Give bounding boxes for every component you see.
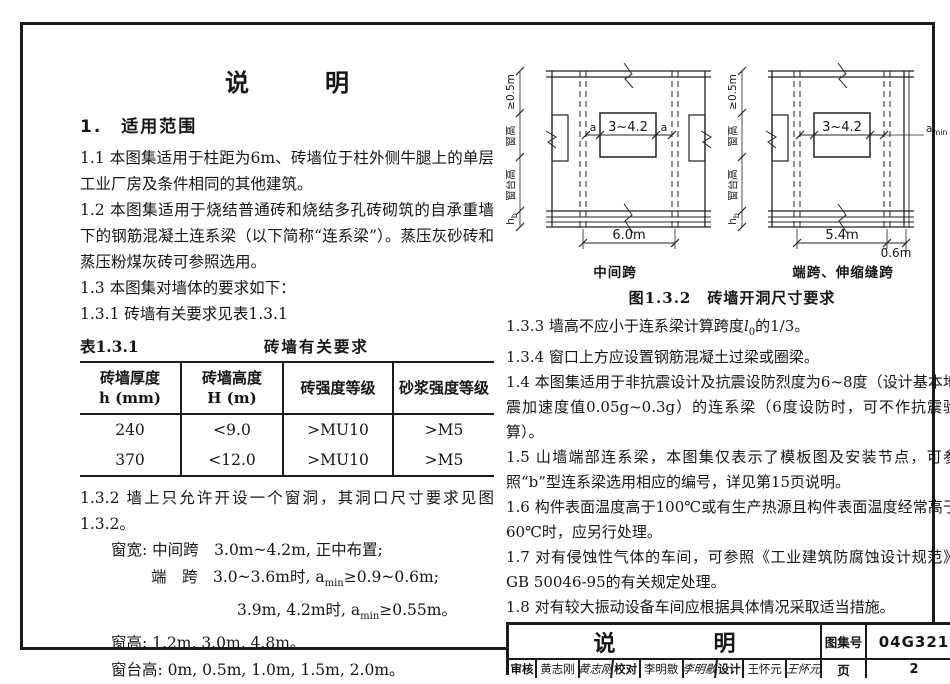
col-header-thickness: 砖墙厚度h (mm) [80,362,181,414]
spec-end-span-2: 3.9m, 4.2m时, amin≥0.55m。 [80,597,494,630]
dim-top-label: ≥0.5m [506,74,517,110]
proofreader-signature: 李明敭 [683,660,717,678]
page-label: 页 [820,658,865,678]
break-symbol [624,63,633,88]
cell: >M5 [393,445,494,476]
page-number: 2 [865,658,950,678]
paragraph-1-5: 1.5 山墙端部连系梁，本图集仅表示了模板图及安装节点，可参照“b”型连系梁选用… [506,445,950,495]
paragraph-1-6: 1.6 构件表面温度高于100℃或有生产热源且构件表面温度经常高于60℃时，应另… [506,495,950,545]
paragraph-1-7: 1.7 对有侵蚀性气体的车间，可参照《工业建筑防腐蚀设计规范》GB 50046-… [506,545,950,595]
designer-signature: 王怀元 [786,660,820,678]
cell: >M5 [393,414,494,445]
dim-beam-depth-label: hb [728,213,741,225]
end-span-caption: 端跨、伸缩缝跨 [792,261,894,281]
paragraph-1-3: 1.3 本图集对墙体的要求如下： [80,275,494,301]
opening-width-label: 3~4.2 [822,120,862,135]
spec-sill-height: 窗台高: 0m, 0.5m, 1.0m, 1.5m, 2.0m。 [80,657,494,684]
span-dim-label: 6.0m [612,228,645,243]
reviewer-name: 黄志刚 [537,660,580,678]
paragraph-1-3-1: 1.3.1 砖墙有关要求见表1.3.1 [80,301,494,327]
table-row: 370 <12.0 >MU10 >M5 [80,445,494,476]
spec-window-width: 窗宽: 中间跨 3.0m~4.2m, 正中布置; [80,537,494,564]
opening-width-label: 3~4.2 [608,120,648,135]
designer-label: 设计 [716,660,744,678]
figure-1-3-2: ≥0.5m 窗高 窗台高 hb [506,61,950,281]
page-frame: 说 明 1. 适用范围 1.1 本图集适用于柱距为6m、砖墙位于柱外侧牛腿上的单… [20,22,935,650]
cell: <9.0 [181,414,283,445]
end-span-diagram: ≥0.5m 窗高 窗台高 hb [728,61,950,281]
designer-name: 王怀元 [744,660,787,678]
cell: 240 [80,414,181,445]
col-header-brick-grade: 砖强度等级 [283,362,393,414]
table-header-row: 砖墙厚度h (mm) 砖墙高度H (m) 砖强度等级 砂浆强度等级 [80,362,494,414]
spec-end-span: 端 跨 3.0~3.6m时, amin≥0.9~0.6m; [80,564,494,597]
reviewer-label: 审核 [509,660,537,678]
title-block: 说 明 图集号 04G321 审核 黄志刚 黄志刚 校对 李明敭 李明敭 设计 … [506,622,950,675]
cell: >MU10 [283,445,393,476]
cell: >MU10 [283,414,393,445]
atlas-number-label: 图集号 [820,625,865,658]
dim-a-right: a [661,121,668,134]
spec-window-height: 窗高: 1.2m, 3.0m, 4.8m。 [80,630,494,657]
dim-sill-height-label: 窗台高 [728,169,739,201]
corbel-right [689,115,705,161]
paragraph-1-2: 1.2 本图集适用于烧结普通砖和烧结多孔砖砌筑的自承重墙下的钢筋混凝土连系梁（以… [80,197,494,275]
brick-wall-requirements-table: 砖墙厚度h (mm) 砖墙高度H (m) 砖强度等级 砂浆强度等级 240 [80,361,494,477]
paragraph-1-3-4: 1.3.4 窗口上方应设置钢筋混凝土过梁或圈梁。 [506,345,950,370]
dim-sill-height-label: 窗台高 [506,169,517,201]
title-block-title: 说 明 [509,625,820,658]
paragraph-1-3-3: 1.3.3 墙高不应小于连系梁计算跨度l0的1/3。 [506,314,950,345]
mid-span-caption: 中间跨 [593,261,637,281]
figure-caption: 图1.3.2 砖墙开洞尺寸要求 [506,287,950,308]
offset-dim-label: 0.6m [881,246,912,259]
atlas-number-value: 04G321 [865,625,950,658]
page-title: 说 明 [80,63,494,98]
cell: 370 [80,445,181,476]
dim-a-left: a [590,121,597,134]
mid-span-diagram: ≥0.5m 窗高 窗台高 hb [506,61,724,281]
right-column: ≥0.5m 窗高 窗台高 hb [506,55,950,620]
dim-top-label: ≥0.5m [728,74,739,110]
table-row: 240 <9.0 >MU10 >M5 [80,414,494,445]
dim-window-height-label: 窗高 [506,126,517,147]
paragraph-1-8: 1.8 对有较大振动设备车间应根据具体情况采取适当措施。 [506,595,950,620]
break-symbol [838,63,847,88]
mid-span-drawing: ≥0.5m 窗高 窗台高 hb [506,61,724,259]
table-caption: 表1.3.1 砖墙有关要求 [80,335,494,357]
proofreader-name: 李明敭 [641,660,684,678]
title-block-credits-row: 审核 黄志刚 黄志刚 校对 李明敭 李明敭 设计 王怀元 王怀元 [509,658,820,678]
paragraph-1-4: 1.4 本图集适用于非抗震设计及抗震设防烈度为6~8度（设计基本地震加速度值0.… [506,370,950,445]
section-1-heading: 1. 适用范围 [80,112,494,137]
paragraph-1-1: 1.1 本图集适用于柱距为6m、砖墙位于柱外侧牛腿上的单层工业厂房及条件相同的其… [80,145,494,197]
dim-window-height-label: 窗高 [728,126,739,147]
proofreader-label: 校对 [613,660,641,678]
paragraph-1-3-2: 1.3.2 墙上只允许开设一个窗洞，其洞口尺寸要求见图1.3.2。 [80,485,494,537]
col-header-mortar-grade: 砂浆强度等级 [393,362,494,414]
cell: <12.0 [181,445,283,476]
table-title: 砖墙有关要求 [139,335,494,357]
table-label: 表1.3.1 [80,335,139,357]
end-span-drawing: ≥0.5m 窗高 窗台高 hb [728,61,950,259]
dim-beam-depth-label: hb [506,213,519,225]
col-header-height: 砖墙高度H (m) [181,362,283,414]
left-column: 说 明 1. 适用范围 1.1 本图集适用于柱距为6m、砖墙位于柱外侧牛腿上的单… [80,55,494,684]
dim-amin-label: amin [926,123,948,137]
span-dim-label: 5.4m [825,228,858,243]
reviewer-signature: 黄志刚 [579,660,613,678]
